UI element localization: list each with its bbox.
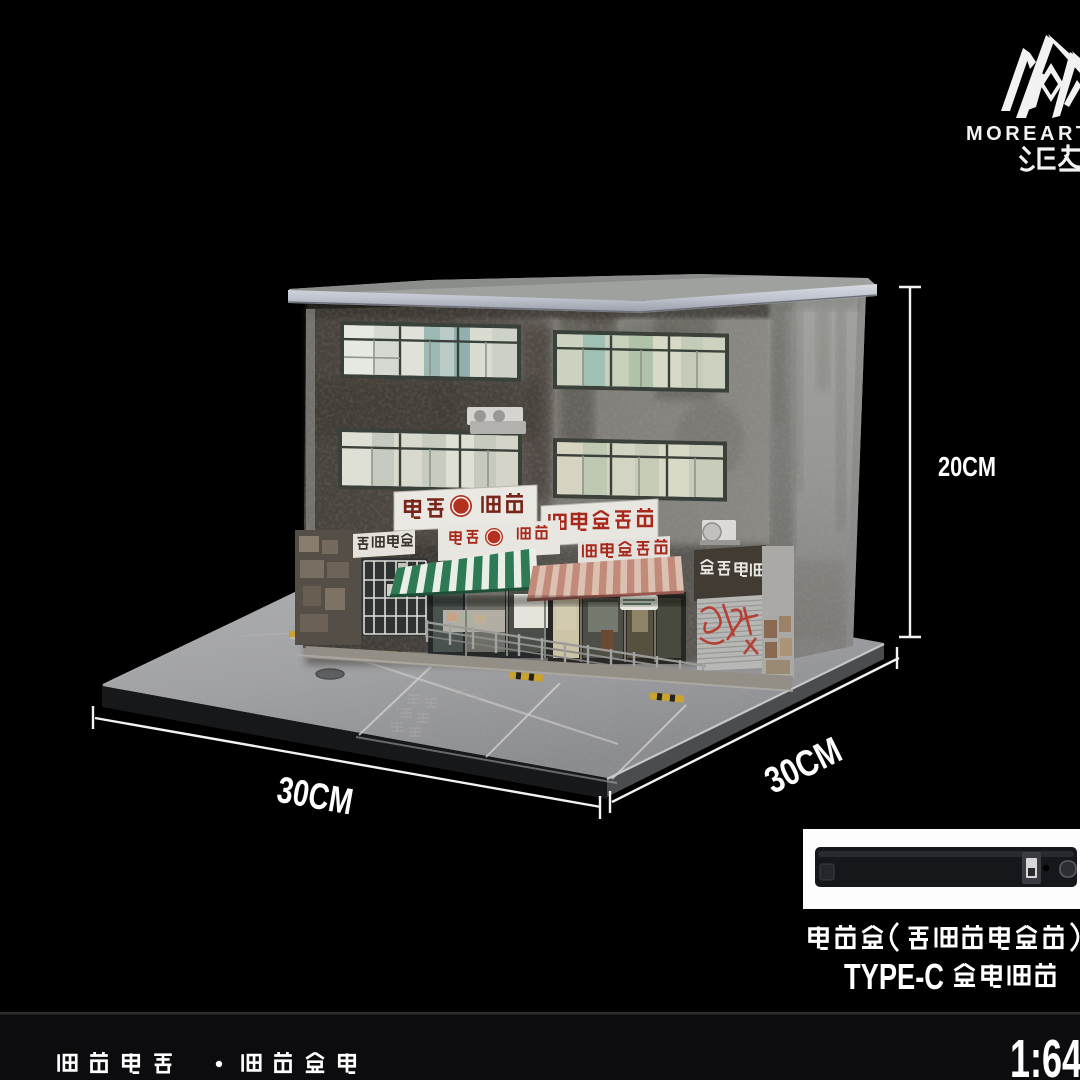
svg-text:30CM: 30CM (758, 729, 848, 801)
svg-text:20CM: 20CM (938, 451, 996, 482)
svg-text:30CM: 30CM (274, 769, 356, 823)
svg-text:MOREART: MOREART (966, 123, 1080, 145)
svg-text:1:64: 1:64 (1010, 1029, 1080, 1080)
svg-text:TYPE-C: TYPE-C (844, 956, 944, 997)
